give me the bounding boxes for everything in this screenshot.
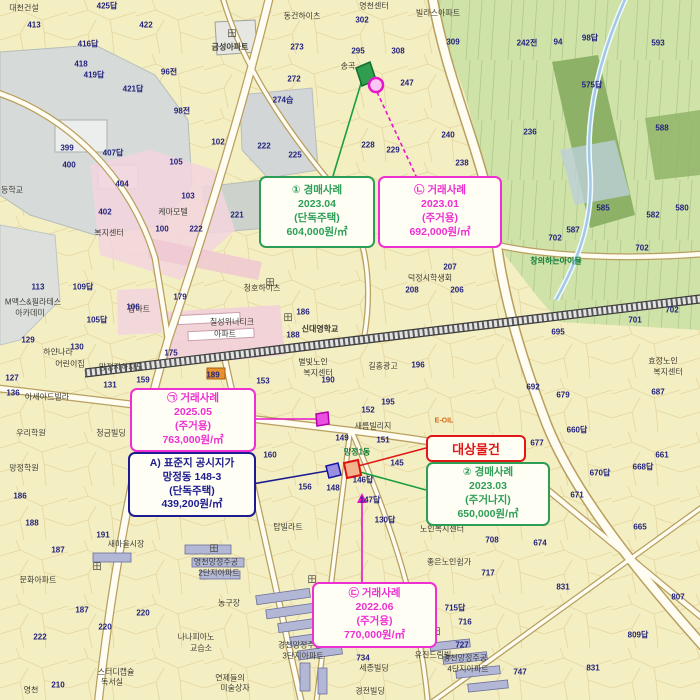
callout-price: 692,000원/㎡ bbox=[380, 226, 500, 240]
callout-use: (주거용) bbox=[132, 420, 254, 434]
subject-property-label: 대상물건 bbox=[452, 439, 500, 458]
callout-title: ① 경매사례 bbox=[261, 184, 373, 198]
gas-station-icon bbox=[207, 368, 225, 379]
callout-date: 2023.04 bbox=[261, 198, 373, 212]
callout-price: 604,000원/㎡ bbox=[261, 226, 373, 240]
callout-price: 763,000원/㎡ bbox=[132, 434, 254, 448]
callout-auction-1: ① 경매사례 2023.04 (단독주택) 604,000원/㎡ bbox=[259, 176, 375, 248]
callout-date: 2023.01 bbox=[380, 198, 500, 212]
callout-title: ㉢ 거래사례 bbox=[314, 587, 435, 601]
callout-standard-lot: A) 표준지 공시지가 망정동 148-3 (단독주택) 439,200원/㎡ bbox=[128, 452, 256, 517]
callout-sale-nieun: ㉡ 거래사례 2023.01 (주거용) 692,000원/㎡ bbox=[378, 176, 502, 248]
callout-price: 439,200원/㎡ bbox=[130, 498, 254, 512]
callout-date: 2022.06 bbox=[314, 601, 435, 615]
map-canvas: 대천건설영천센터빌라스아파트동건하이츠금성아파트송곡케마모텔복지센터청호하이츠탑… bbox=[0, 0, 700, 700]
subject-property-box: 대상물건 bbox=[426, 435, 526, 462]
callout-sale-digeut: ㉢ 거래사례 2022.06 (주거용) 770,000원/㎡ bbox=[312, 582, 437, 648]
callout-auction-2: ② 경매사례 2023.03 (주거나지) 650,000원/㎡ bbox=[426, 462, 550, 526]
callout-price: 770,000원/㎡ bbox=[314, 629, 435, 643]
callout-use: (주거용) bbox=[380, 212, 500, 226]
callout-date: 2025.05 bbox=[132, 406, 254, 420]
callout-price: 650,000원/㎡ bbox=[428, 508, 548, 522]
callout-use: (주거나지) bbox=[428, 494, 548, 508]
marker-standard-lot bbox=[326, 463, 341, 478]
callout-date: 2023.03 bbox=[428, 480, 548, 494]
callout-use: (단독주택) bbox=[130, 485, 254, 499]
callout-title: ② 경매사례 bbox=[428, 466, 548, 480]
callout-title: ㉡ 거래사례 bbox=[380, 184, 500, 198]
callout-sale-giyeok: ㉠ 거래사례 2025.05 (주거용) 763,000원/㎡ bbox=[130, 388, 256, 452]
marker-sale-nieun bbox=[369, 78, 383, 92]
callout-use: (단독주택) bbox=[261, 212, 373, 226]
marker-sale-giyeok bbox=[316, 412, 329, 426]
callout-title: A) 표준지 공시지가 bbox=[130, 457, 254, 471]
callout-use: (주거용) bbox=[314, 615, 435, 629]
callout-address: 망정동 148-3 bbox=[130, 471, 254, 485]
callout-title: ㉠ 거래사례 bbox=[132, 392, 254, 406]
marker-subject-property bbox=[344, 460, 361, 478]
